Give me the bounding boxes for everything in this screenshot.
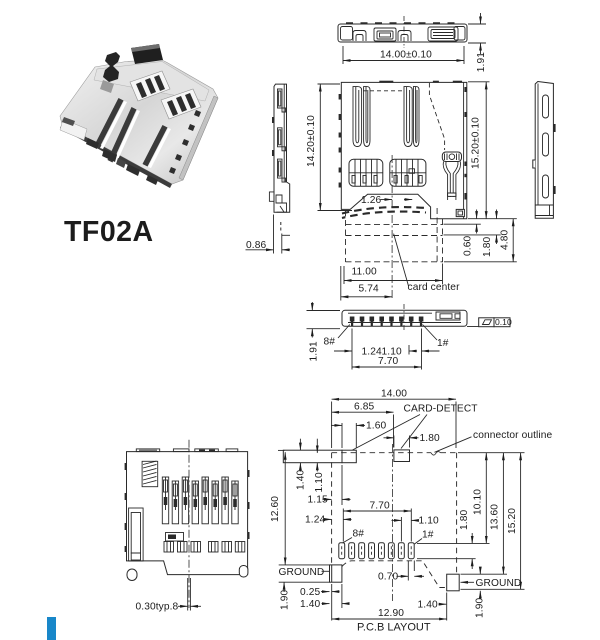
svg-text:card center: card center (408, 282, 461, 293)
svg-text:connector outline: connector outline (473, 430, 553, 441)
svg-text:6.85: 6.85 (354, 402, 374, 413)
svg-text:0.70: 0.70 (378, 572, 398, 583)
svg-text:0.25: 0.25 (300, 587, 320, 598)
svg-text:1.10: 1.10 (314, 472, 325, 492)
svg-text:1.24: 1.24 (305, 515, 325, 526)
svg-text:1.40: 1.40 (296, 470, 307, 490)
svg-text:1.91: 1.91 (476, 52, 487, 72)
svg-text:0.30typ.8: 0.30typ.8 (136, 602, 179, 613)
svg-text:P.C.B LAYOUT: P.C.B LAYOUT (357, 622, 431, 634)
svg-text:0.10: 0.10 (495, 317, 512, 327)
svg-text:4.80: 4.80 (500, 230, 511, 250)
svg-text:1.40: 1.40 (300, 599, 320, 610)
svg-text:GROUND: GROUND (476, 578, 522, 589)
svg-text:1.10: 1.10 (419, 516, 439, 527)
svg-text:1#: 1# (437, 338, 449, 349)
svg-text:13.60: 13.60 (490, 504, 501, 530)
svg-text:5.74: 5.74 (359, 284, 379, 295)
svg-text:1.90: 1.90 (280, 590, 291, 610)
svg-text:0.60: 0.60 (463, 236, 474, 256)
svg-text:14.20±0.10: 14.20±0.10 (306, 115, 317, 167)
svg-text:CARD-DETECT: CARD-DETECT (404, 404, 478, 415)
svg-text:1.80: 1.80 (420, 433, 440, 444)
svg-text:GROUND: GROUND (279, 567, 325, 578)
svg-text:12.90: 12.90 (378, 608, 404, 619)
svg-text:8#: 8# (353, 529, 365, 540)
svg-text:1.91: 1.91 (309, 341, 320, 361)
svg-text:7.70: 7.70 (370, 501, 390, 512)
svg-text:14.00: 14.00 (381, 389, 407, 400)
svg-text:1.26: 1.26 (361, 195, 381, 206)
svg-text:8#: 8# (324, 337, 336, 348)
svg-text:15.20: 15.20 (507, 508, 518, 534)
svg-text:1.80: 1.80 (459, 510, 470, 530)
svg-text:1.40: 1.40 (418, 600, 438, 611)
svg-text:10.10: 10.10 (473, 489, 484, 515)
svg-text:1.80: 1.80 (482, 237, 493, 257)
svg-text:1#: 1# (422, 530, 434, 541)
svg-text:11.00: 11.00 (352, 267, 377, 278)
svg-text:7.70: 7.70 (378, 356, 398, 367)
svg-text:15.20±0.10: 15.20±0.10 (471, 117, 482, 169)
svg-text:1.90: 1.90 (475, 598, 486, 618)
svg-text:TF02A: TF02A (64, 216, 154, 248)
svg-text:1.60: 1.60 (366, 421, 386, 432)
svg-text:12.60: 12.60 (270, 496, 281, 522)
svg-text:14.00±0.10: 14.00±0.10 (380, 50, 432, 61)
svg-text:1.15: 1.15 (308, 495, 328, 506)
